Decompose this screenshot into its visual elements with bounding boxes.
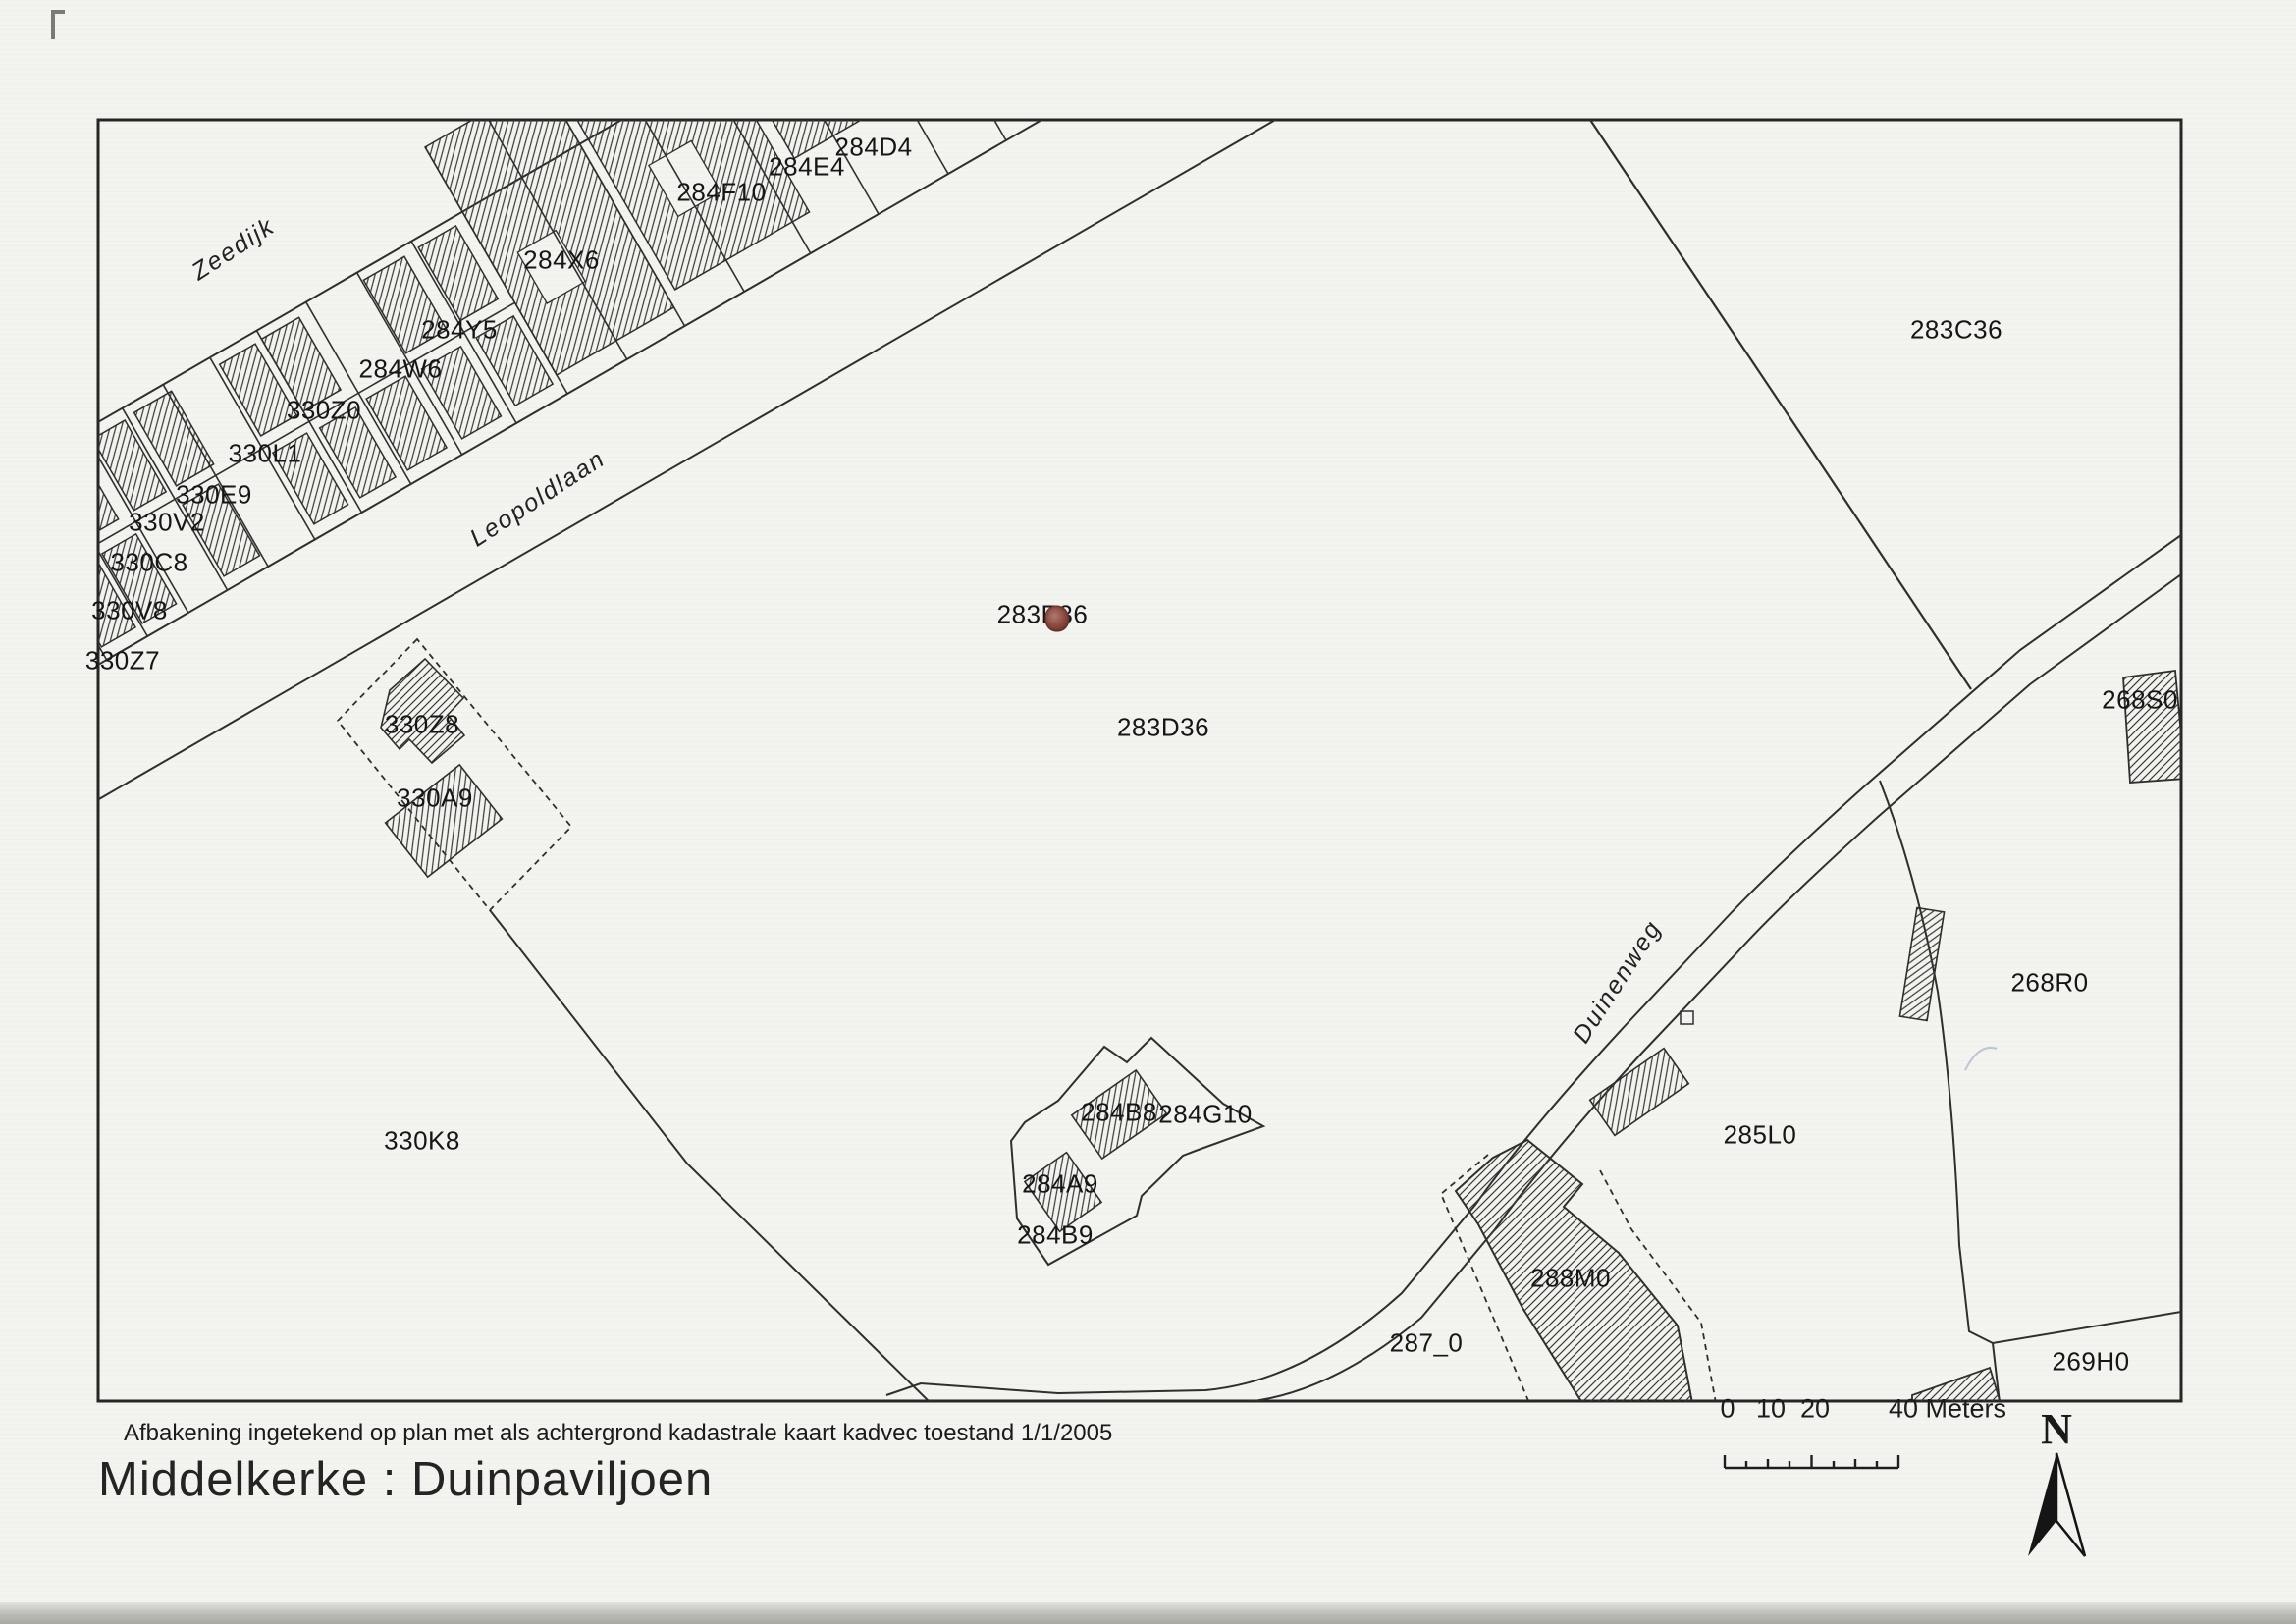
building-284a9: [1025, 1153, 1101, 1232]
map-source-note: Afbakening ingetekend op plan met als ac…: [124, 1420, 1112, 1447]
parcel-330z8-330a9: [338, 639, 931, 1403]
boundary-330k8: [490, 910, 931, 1403]
parcel-288m0: [1441, 1140, 1716, 1403]
parcel-284-group: [1011, 1038, 1263, 1265]
building-330z8: [381, 659, 464, 763]
scan-artifact: [51, 10, 55, 39]
building-284b8: [1072, 1070, 1167, 1159]
red-annotation-mark: [1045, 606, 1070, 632]
scanned-cadastral-map-page: 284D4284E4284F10284X6284Y5284W6330Z0330L…: [0, 0, 2296, 1624]
boundary-283c36: [1590, 120, 1971, 689]
right-parcels: [1880, 671, 2185, 1403]
building-288m0: [1456, 1140, 1692, 1403]
building-330a9: [386, 765, 503, 877]
north-arrow-icon: [2028, 1453, 2085, 1556]
map-linework: [0, 0, 2296, 1624]
parcel-285l0-structures: [1590, 1011, 1693, 1135]
zeedijk-parcel-strip: [0, 0, 1372, 849]
map-content: [0, 0, 2185, 1403]
strip-buildings: [0, 0, 990, 727]
scan-pen-mark: [1965, 1048, 1997, 1070]
scan-artifact: [51, 10, 65, 14]
building-269h0: [1912, 1368, 2001, 1403]
scan-edge-shadow: [0, 1602, 2296, 1624]
building-268s0: [2123, 671, 2185, 783]
map-title: Middelkerke : Duinpaviljoen: [98, 1452, 713, 1507]
scalebar-ruler: [1725, 1455, 1898, 1468]
north-letter: N: [2041, 1404, 2072, 1454]
building-268r0: [1899, 907, 1944, 1020]
